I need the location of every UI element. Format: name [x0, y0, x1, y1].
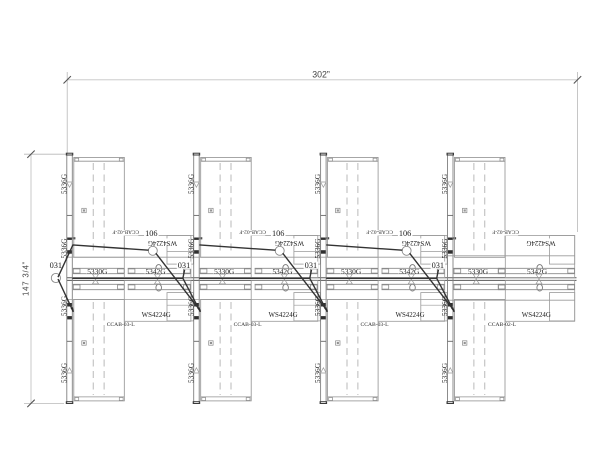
- svg-text:5336G: 5336G: [440, 362, 449, 383]
- svg-text:CCAB-03-L: CCAB-03-L: [234, 322, 263, 328]
- svg-text:CCAB-02-F: CCAB-02-F: [112, 229, 139, 235]
- svg-text:031: 031: [432, 261, 444, 270]
- svg-text:106: 106: [145, 229, 157, 238]
- svg-text:5336G: 5336G: [186, 362, 195, 383]
- svg-text:5336G: 5336G: [440, 173, 449, 194]
- svg-text:5336G: 5336G: [59, 173, 68, 194]
- svg-text:031: 031: [50, 261, 62, 270]
- svg-text:5330G: 5330G: [214, 267, 235, 276]
- svg-text:WS4224G: WS4224G: [148, 239, 177, 246]
- svg-text:WS4224G: WS4224G: [526, 239, 555, 246]
- svg-text:WS4224G: WS4224G: [522, 312, 551, 319]
- svg-text:5330G: 5330G: [341, 267, 362, 276]
- svg-text:5336G: 5336G: [313, 362, 322, 383]
- svg-text:CCAB-02-F: CCAB-02-F: [492, 229, 519, 235]
- svg-text:031: 031: [305, 261, 317, 270]
- svg-text:5336G: 5336G: [59, 362, 68, 383]
- svg-text:5336G: 5336G: [440, 238, 449, 259]
- svg-text:WS4224G: WS4224G: [402, 239, 431, 246]
- svg-text:5342G: 5342G: [145, 267, 166, 276]
- svg-text:CCAB-03-L: CCAB-03-L: [107, 322, 136, 328]
- svg-text:WS4224G: WS4224G: [395, 312, 424, 319]
- svg-text:147 3/4”: 147 3/4”: [22, 261, 31, 296]
- svg-text:031: 031: [178, 261, 190, 270]
- svg-text:CCAB-02-F: CCAB-02-F: [239, 229, 266, 235]
- svg-text:5330G: 5330G: [468, 267, 489, 276]
- svg-text:WS4224G: WS4224G: [142, 312, 171, 319]
- svg-text:5336G: 5336G: [186, 238, 195, 259]
- svg-text:5336G: 5336G: [313, 238, 322, 259]
- svg-text:CCAB-02-F: CCAB-02-F: [366, 229, 393, 235]
- svg-text:106: 106: [272, 229, 284, 238]
- svg-text:WS4224G: WS4224G: [269, 312, 298, 319]
- svg-text:5330G: 5330G: [87, 267, 108, 276]
- svg-text:5336G: 5336G: [59, 238, 68, 259]
- svg-text:WS4224G: WS4224G: [275, 239, 304, 246]
- svg-text:302”: 302”: [312, 70, 330, 80]
- svg-text:5342G: 5342G: [527, 267, 548, 276]
- svg-text:CCAB-03-L: CCAB-03-L: [361, 322, 390, 328]
- svg-text:106: 106: [399, 229, 411, 238]
- svg-text:CCAB-02-L: CCAB-02-L: [488, 322, 517, 328]
- svg-text:5336G: 5336G: [186, 173, 195, 194]
- svg-text:5342G: 5342G: [272, 267, 293, 276]
- svg-text:5336G: 5336G: [313, 173, 322, 194]
- svg-text:5342G: 5342G: [399, 267, 420, 276]
